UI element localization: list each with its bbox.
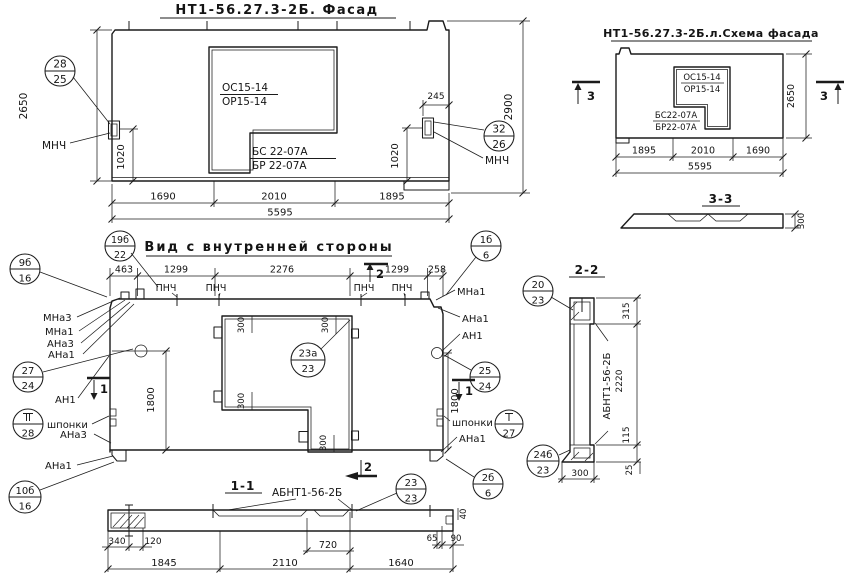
svg-text:120: 120 <box>144 537 161 547</box>
section-1-1-title: 1-1 <box>231 479 256 493</box>
svg-text:300: 300 <box>571 469 588 479</box>
panel-drawing: НТ1-56.27.3-2Б. Фасад ОС15-14 ОР15-14 БС… <box>0 0 852 581</box>
label-an1-left: АН1 <box>55 395 76 406</box>
inner-panel-outline <box>110 299 443 452</box>
label-ana1b-right: АНа1 <box>459 434 486 445</box>
callout-key-I-27: I 27 <box>495 410 523 440</box>
door-mark-top: БС 22-07А <box>252 146 308 158</box>
section-marker-3-right: 3 <box>816 82 844 104</box>
svg-text:463: 463 <box>115 265 133 276</box>
svg-text:19б: 19б <box>111 235 129 246</box>
svg-text:II: II <box>25 413 31 424</box>
svg-text:2650: 2650 <box>18 93 30 120</box>
dim-schema-bottom: 1895 2010 1690 5595 <box>613 138 787 177</box>
door-mark-bottom: БР 22-07А <box>252 160 307 172</box>
svg-text:23: 23 <box>405 494 418 505</box>
svg-text:ПНЧ: ПНЧ <box>206 283 227 294</box>
inner-right-labels: 1б 6 МНа1 АНа1 АН1 25 24 1 шпонки <box>436 231 523 500</box>
section-3-3: 3-3 300 <box>621 192 807 232</box>
section-3-3-title: 3-3 <box>709 192 734 206</box>
schema-view: НТ1-56.27.3-2Б.л.Схема фасада ОС15-14 ОР… <box>572 27 844 232</box>
svg-text:ПНЧ: ПНЧ <box>354 283 375 294</box>
svg-text:300: 300 <box>319 435 329 451</box>
svg-text:2010: 2010 <box>261 192 286 203</box>
callout-key-II-28: II 28 <box>13 409 43 440</box>
drawing-sheet: НТ1-56.27.3-2Б. Фасад ОС15-14 ОР15-14 БС… <box>0 0 852 581</box>
callout-1b-6: 1б 6 <box>446 231 501 295</box>
svg-text:22: 22 <box>114 250 126 261</box>
label-mna1: МНа1 <box>45 327 74 338</box>
svg-text:1895: 1895 <box>632 146 656 157</box>
svg-text:5595: 5595 <box>688 162 712 173</box>
schema-window-bottom: ОР15-14 <box>684 85 721 95</box>
svg-text:16: 16 <box>19 502 32 513</box>
dim-schema-height: 2650 <box>786 51 812 142</box>
label-ana1b: АНа1 <box>45 461 72 472</box>
schema-door-bottom: БР22-07А <box>655 123 697 133</box>
window-mark-top: ОС15-14 <box>222 82 268 94</box>
svg-text:2010: 2010 <box>691 146 715 157</box>
label-mna1-right: МНа1 <box>457 287 486 298</box>
label-an1-right: АН1 <box>462 331 483 342</box>
schema-window-top: ОС15-14 <box>683 73 720 83</box>
svg-text:1845: 1845 <box>151 558 176 569</box>
svg-text:245: 245 <box>427 92 444 102</box>
svg-text:1: 1 <box>100 382 108 396</box>
section-2-2-profile <box>562 298 594 462</box>
svg-text:1020: 1020 <box>116 144 127 169</box>
svg-text:32: 32 <box>492 124 505 136</box>
window-mark-bottom: ОР15-14 <box>222 96 267 108</box>
svg-text:24: 24 <box>22 381 35 392</box>
svg-text:2650: 2650 <box>786 84 797 108</box>
svg-text:9б: 9б <box>19 258 32 269</box>
svg-text:2: 2 <box>364 460 372 474</box>
svg-text:65: 65 <box>427 534 438 544</box>
dim-facade-height-left: 2650 <box>18 27 112 185</box>
svg-text:26: 26 <box>492 139 506 151</box>
section-2-2-label: АБНТ1-56-2Б <box>602 352 613 419</box>
dim-anchor-300: 300 300 300 300 <box>237 316 336 452</box>
label-mna3: МНа3 <box>43 313 72 324</box>
svg-text:90: 90 <box>451 534 462 544</box>
label-ana1-right: АНа1 <box>462 314 489 325</box>
svg-text:2276: 2276 <box>270 265 294 276</box>
svg-text:24: 24 <box>479 382 492 393</box>
svg-text:10б: 10б <box>16 486 35 497</box>
svg-text:23: 23 <box>302 364 315 375</box>
svg-text:1: 1 <box>465 384 473 398</box>
label-ana1: АНа1 <box>48 350 75 361</box>
mnch-label-right: МНЧ <box>485 155 509 167</box>
svg-text:115: 115 <box>622 426 632 443</box>
section-1-1-profile <box>108 510 453 531</box>
dim-facade-height-right: 2900 <box>447 18 530 197</box>
svg-text:23а: 23а <box>299 349 318 360</box>
callout-28-25: 28 25 <box>45 56 110 124</box>
svg-text:258: 258 <box>428 265 446 276</box>
svg-text:340: 340 <box>108 537 125 547</box>
svg-text:25: 25 <box>625 465 635 476</box>
section-marker-2-bottom: 2 <box>345 460 377 480</box>
svg-text:1020: 1020 <box>390 143 401 168</box>
label-ana3: АНа3 <box>47 339 74 350</box>
section-1-1-label: АБНТ1-56-2Б <box>272 487 342 499</box>
svg-text:28: 28 <box>22 429 35 440</box>
svg-text:3: 3 <box>820 89 828 103</box>
inner-opening <box>222 316 352 452</box>
svg-text:I: I <box>508 413 511 424</box>
svg-text:2900: 2900 <box>503 94 515 121</box>
dim-245: 245 <box>420 92 453 116</box>
svg-text:2220: 2220 <box>615 369 625 392</box>
label-ana3b: АНа3 <box>60 430 87 441</box>
svg-text:23: 23 <box>537 466 550 477</box>
svg-text:1299: 1299 <box>385 265 409 276</box>
svg-text:720: 720 <box>319 540 337 551</box>
dim-facade-bottom: 1690 2010 1895 5595 <box>109 181 453 223</box>
svg-text:1895: 1895 <box>379 192 404 203</box>
svg-text:23: 23 <box>405 478 418 489</box>
svg-text:25: 25 <box>53 74 66 86</box>
inner-title: Вид с внутренней стороны <box>144 240 393 255</box>
svg-text:1299: 1299 <box>164 265 188 276</box>
svg-text:1690: 1690 <box>746 146 770 157</box>
svg-text:300: 300 <box>237 317 247 333</box>
svg-text:1640: 1640 <box>388 558 413 569</box>
section-1-1: 1-1 АБНТ1-56-2Б 23 23 340 12 <box>102 474 469 573</box>
svg-text:24б: 24б <box>534 450 553 461</box>
label-keys-right: шпонки <box>452 418 493 429</box>
svg-text:1800: 1800 <box>146 387 157 412</box>
svg-text:20: 20 <box>532 280 545 291</box>
svg-text:28: 28 <box>53 59 66 71</box>
svg-text:ПНЧ: ПНЧ <box>392 283 413 294</box>
svg-text:ПНЧ: ПНЧ <box>156 283 177 294</box>
callout-9b-16: 9б 16 <box>10 254 107 297</box>
callout-23-23: 23 23 <box>356 474 426 511</box>
svg-text:16: 16 <box>19 274 32 285</box>
svg-text:6: 6 <box>483 251 489 262</box>
svg-text:27: 27 <box>503 429 516 440</box>
callout-20-23: 20 23 <box>523 276 573 310</box>
svg-text:300: 300 <box>797 213 807 229</box>
inner-left-labels: МНа3 МНа1 АНа3 АНа1 27 24 АН1 1 II <box>9 254 134 513</box>
inner-view: 19б 22 Вид с внутренней стороны 463 1299… <box>9 231 523 513</box>
svg-text:6: 6 <box>485 489 491 500</box>
svg-text:300: 300 <box>237 393 247 409</box>
svg-text:1690: 1690 <box>150 192 175 203</box>
svg-text:5595: 5595 <box>267 208 292 219</box>
svg-text:2б: 2б <box>482 473 495 484</box>
svg-text:23: 23 <box>532 296 545 307</box>
section-marker-3-left: 3 <box>572 82 600 104</box>
dim-1020-right: 1020 <box>390 125 422 185</box>
svg-text:2: 2 <box>376 267 384 281</box>
svg-text:25: 25 <box>479 366 492 377</box>
schema-door-top: БС22-07А <box>655 111 697 121</box>
schema-title: НТ1-56.27.3-2Б.л.Схема фасада <box>603 27 819 40</box>
mnch-label-left: МНЧ <box>42 140 66 152</box>
svg-text:27: 27 <box>22 366 35 377</box>
svg-text:3: 3 <box>587 89 595 103</box>
dim-1800-left: 1800 <box>112 345 170 454</box>
callout-2b-6: 2б 6 <box>446 459 503 500</box>
pnch-labels: ПНЧ ПНЧ ПНЧ ПНЧ <box>156 283 413 306</box>
callout-32-26: 32 26 <box>434 121 514 151</box>
svg-text:40: 40 <box>459 509 469 520</box>
svg-text:1б: 1б <box>480 235 493 246</box>
svg-text:315: 315 <box>622 302 632 319</box>
section-2-2: 2-2 20 23 24б 23 АБНТ1-56-2Б <box>523 263 641 483</box>
svg-text:300: 300 <box>321 317 331 333</box>
facade-title: НТ1-56.27.3-2Б. Фасад <box>175 3 378 18</box>
section-2-2-title: 2-2 <box>575 263 600 277</box>
facade-view: НТ1-56.27.3-2Б. Фасад ОС15-14 ОР15-14 БС… <box>18 3 530 223</box>
svg-text:2110: 2110 <box>272 558 297 569</box>
